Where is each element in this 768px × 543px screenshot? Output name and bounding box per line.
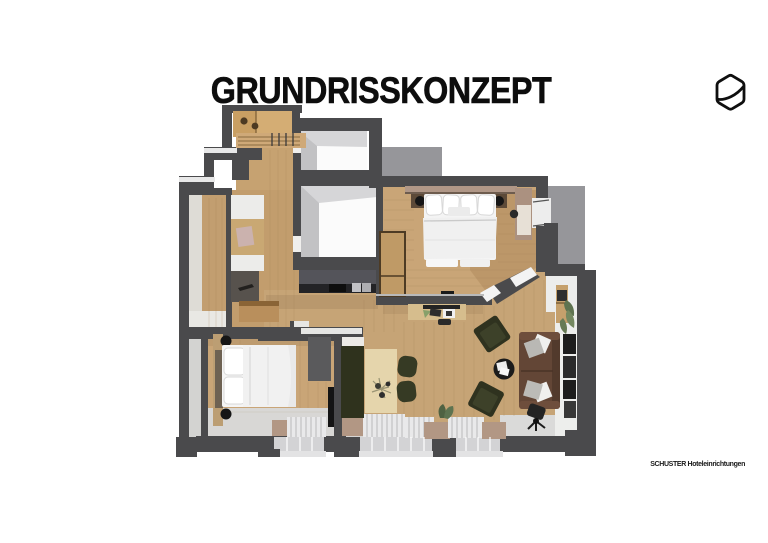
svg-text:SCHUSTER Hoteleinrichtungen: SCHUSTER Hoteleinrichtungen: [650, 461, 745, 468]
